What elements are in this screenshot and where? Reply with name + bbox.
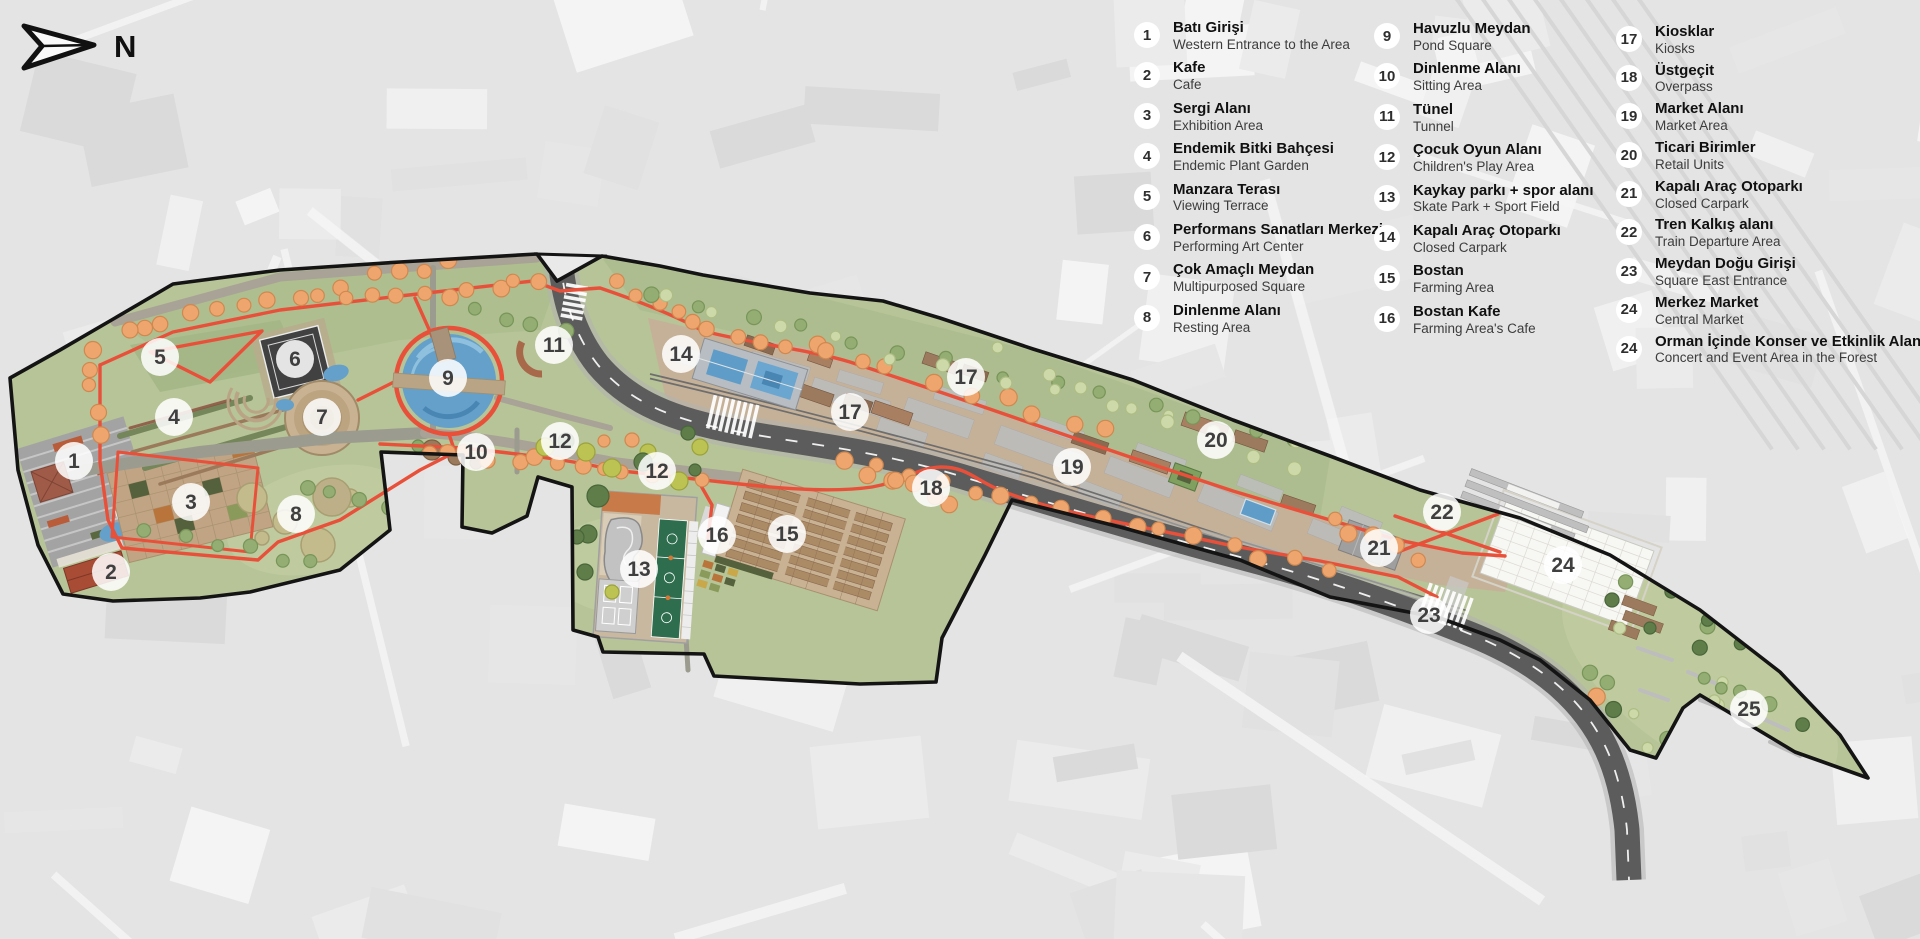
map-marker-17a: 17 bbox=[831, 393, 869, 431]
svg-text:19: 19 bbox=[1060, 456, 1083, 479]
svg-text:21: 21 bbox=[1367, 537, 1391, 560]
legend-number-18: 18 bbox=[1616, 65, 1642, 91]
legend-number-8: 8 bbox=[1134, 305, 1160, 331]
legend-title-tr: Batı Girişi bbox=[1173, 20, 1350, 37]
map-marker-5: 5 bbox=[141, 338, 179, 376]
svg-text:15: 15 bbox=[775, 523, 799, 546]
map-marker-17b: 17 bbox=[947, 358, 985, 396]
svg-text:14: 14 bbox=[669, 343, 693, 366]
legend-subtitle-en: Farming Area bbox=[1413, 280, 1494, 295]
legend-subtitle-en: Skate Park + Sport Field bbox=[1413, 199, 1594, 214]
legend-title-tr: Endemik Bitki Bahçesi bbox=[1173, 141, 1334, 158]
legend-subtitle-en: Exhibition Area bbox=[1173, 118, 1263, 133]
north-arrow-icon bbox=[16, 18, 104, 74]
svg-text:8: 8 bbox=[290, 503, 302, 526]
legend-item-25: 24Orman İçinde Konser ve Etkinlik AlanıC… bbox=[1616, 334, 1866, 373]
svg-text:16: 16 bbox=[705, 524, 728, 547]
legend-subtitle-en: Closed Carpark bbox=[1655, 196, 1803, 211]
legend-item-20: 20Ticari BirimlerRetail Units bbox=[1616, 140, 1866, 179]
legend-number-14: 14 bbox=[1374, 225, 1400, 251]
legend-item-10: 10Dinlenme AlanıSitting Area bbox=[1374, 61, 1624, 101]
svg-text:23: 23 bbox=[1417, 604, 1440, 627]
map-marker-24: 24 bbox=[1544, 546, 1582, 584]
svg-text:22: 22 bbox=[1430, 501, 1453, 524]
legend-item-14: 14Kapalı Araç OtoparkıClosed Carpark bbox=[1374, 223, 1624, 263]
svg-text:10: 10 bbox=[464, 441, 487, 464]
legend-number-24: 24 bbox=[1616, 297, 1642, 323]
legend-title-tr: Merkez Market bbox=[1655, 295, 1758, 312]
svg-text:13: 13 bbox=[627, 558, 650, 581]
svg-text:17: 17 bbox=[838, 401, 861, 424]
legend-number-15: 15 bbox=[1374, 265, 1400, 291]
svg-text:4: 4 bbox=[168, 406, 180, 429]
map-marker-9: 9 bbox=[429, 359, 467, 397]
legend-subtitle-en: Endemic Plant Garden bbox=[1173, 158, 1334, 173]
legend-title-tr: Çok Amaçlı Meydan bbox=[1173, 262, 1314, 279]
legend-number-5: 5 bbox=[1134, 184, 1160, 210]
legend-title-tr: Üstgeçit bbox=[1655, 63, 1714, 80]
legend-item-15: 15BostanFarming Area bbox=[1374, 263, 1624, 303]
legend-item-22: 22Tren Kalkış alanıTrain Departure Area bbox=[1616, 217, 1866, 256]
map-marker-11: 11 bbox=[535, 326, 573, 364]
svg-text:12: 12 bbox=[548, 430, 571, 453]
legend-number-21: 21 bbox=[1616, 181, 1642, 207]
legend-subtitle-en: Closed Carpark bbox=[1413, 240, 1561, 255]
legend-subtitle-en: Cafe bbox=[1173, 77, 1206, 92]
legend-subtitle-en: Concert and Event Area in the Forest bbox=[1655, 350, 1920, 365]
legend-item-5: 5Manzara TerasıViewing Terrace bbox=[1134, 182, 1384, 222]
svg-text:12: 12 bbox=[645, 460, 668, 483]
map-marker-1: 1 bbox=[55, 442, 93, 480]
legend-number-22: 22 bbox=[1616, 219, 1642, 245]
svg-text:6: 6 bbox=[289, 348, 301, 371]
legend-item-19: 19Market AlanıMarket Area bbox=[1616, 101, 1866, 140]
legend-item-11: 11TünelTunnel bbox=[1374, 102, 1624, 142]
legend-number-20: 20 bbox=[1616, 142, 1642, 168]
legend-item-17: 17KiosklarKiosks bbox=[1616, 24, 1866, 63]
legend-item-3: 3Sergi AlanıExhibition Area bbox=[1134, 101, 1384, 141]
legend-title-tr: Manzara Terası bbox=[1173, 182, 1280, 199]
map-marker-19: 19 bbox=[1053, 448, 1091, 486]
map-marker-16: 16 bbox=[698, 516, 736, 554]
legend-subtitle-en: Retail Units bbox=[1655, 157, 1756, 172]
legend-subtitle-en: Overpass bbox=[1655, 79, 1714, 94]
legend-subtitle-en: Sitting Area bbox=[1413, 78, 1521, 93]
map-marker-2: 2 bbox=[92, 553, 130, 591]
legend-title-tr: Havuzlu Meydan bbox=[1413, 21, 1531, 38]
svg-text:9: 9 bbox=[442, 367, 454, 390]
legend-number-23: 23 bbox=[1616, 258, 1642, 284]
legend-number-1: 1 bbox=[1134, 22, 1160, 48]
legend-number-25: 24 bbox=[1616, 336, 1642, 362]
map-marker-21: 21 bbox=[1360, 529, 1398, 567]
legend-title-tr: Tren Kalkış alanı bbox=[1655, 217, 1781, 234]
legend-item-4: 4Endemik Bitki BahçesiEndemic Plant Gard… bbox=[1134, 141, 1384, 181]
legend-item-1: 1Batı GirişiWestern Entrance to the Area bbox=[1134, 20, 1384, 60]
legend-subtitle-en: Train Departure Area bbox=[1655, 234, 1781, 249]
legend-number-7: 7 bbox=[1134, 264, 1160, 290]
legend-item-13: 13Kaykay parkı + spor alanıSkate Park + … bbox=[1374, 183, 1624, 223]
map-marker-6: 6 bbox=[276, 340, 314, 378]
legend-subtitle-en: Western Entrance to the Area bbox=[1173, 37, 1350, 52]
legend-subtitle-en: Children's Play Area bbox=[1413, 159, 1542, 174]
legend-column-1: 1Batı GirişiWestern Entrance to the Area… bbox=[1134, 20, 1384, 343]
legend-title-tr: Kiosklar bbox=[1655, 24, 1714, 41]
legend-item-21: 21Kapalı Araç OtoparkıClosed Carpark bbox=[1616, 179, 1866, 218]
map-marker-7: 7 bbox=[303, 398, 341, 436]
map-marker-15: 15 bbox=[768, 515, 806, 553]
legend-title-tr: Bostan Kafe bbox=[1413, 304, 1536, 321]
svg-text:17: 17 bbox=[954, 366, 977, 389]
legend-subtitle-en: Market Area bbox=[1655, 118, 1744, 133]
map-marker-14: 14 bbox=[662, 335, 700, 373]
svg-text:2: 2 bbox=[105, 561, 117, 584]
svg-text:5: 5 bbox=[154, 346, 166, 369]
map-marker-3: 3 bbox=[172, 483, 210, 521]
legend-item-9: 9Havuzlu MeydanPond Square bbox=[1374, 21, 1624, 61]
legend-number-12: 12 bbox=[1374, 144, 1400, 170]
legend-title-tr: Orman İçinde Konser ve Etkinlik Alanı bbox=[1655, 334, 1920, 351]
legend-title-tr: Market Alanı bbox=[1655, 101, 1744, 118]
legend-item-23: 23Meydan Doğu GirişiSquare East Entrance bbox=[1616, 256, 1866, 295]
map-marker-23: 23 bbox=[1410, 596, 1448, 634]
svg-text:24: 24 bbox=[1551, 554, 1575, 577]
legend-column-3: 17KiosklarKiosks 18ÜstgeçitOverpass 19Ma… bbox=[1616, 24, 1866, 372]
legend-subtitle-en: Performing Art Center bbox=[1173, 239, 1383, 254]
legend-number-16: 16 bbox=[1374, 306, 1400, 332]
map-marker-18: 18 bbox=[912, 469, 950, 507]
map-marker-22: 22 bbox=[1423, 493, 1461, 531]
svg-text:3: 3 bbox=[185, 491, 197, 514]
legend-title-tr: Bostan bbox=[1413, 263, 1494, 280]
legend-subtitle-en: Central Market bbox=[1655, 312, 1758, 327]
legend-number-10: 10 bbox=[1374, 63, 1400, 89]
svg-text:20: 20 bbox=[1204, 429, 1227, 452]
legend-subtitle-en: Viewing Terrace bbox=[1173, 198, 1280, 213]
legend-number-17: 17 bbox=[1616, 26, 1642, 52]
legend-title-tr: Dinlenme Alanı bbox=[1173, 303, 1281, 320]
legend-title-tr: Çocuk Oyun Alanı bbox=[1413, 142, 1542, 159]
legend-title-tr: Sergi Alanı bbox=[1173, 101, 1263, 118]
legend-title-tr: Meydan Doğu Girişi bbox=[1655, 256, 1796, 273]
legend-item-6: 6Performans Sanatları MerkeziPerforming … bbox=[1134, 222, 1384, 262]
legend-item-16: 16Bostan KafeFarming Area's Cafe bbox=[1374, 304, 1624, 344]
legend-number-3: 3 bbox=[1134, 103, 1160, 129]
legend-subtitle-en: Pond Square bbox=[1413, 38, 1531, 53]
legend-title-tr: Kapalı Araç Otoparkı bbox=[1655, 179, 1803, 196]
legend-number-2: 2 bbox=[1134, 62, 1160, 88]
legend-column-2: 9Havuzlu MeydanPond Square 10Dinlenme Al… bbox=[1374, 21, 1624, 344]
map-marker-25: 25 bbox=[1730, 690, 1768, 728]
legend-number-6: 6 bbox=[1134, 224, 1160, 250]
north-arrow: N bbox=[16, 18, 136, 74]
legend-item-8: 8Dinlenme AlanıResting Area bbox=[1134, 303, 1384, 343]
legend-item-24: 24Merkez MarketCentral Market bbox=[1616, 295, 1866, 334]
legend-title-tr: Dinlenme Alanı bbox=[1413, 61, 1521, 78]
legend-title-tr: Kafe bbox=[1173, 60, 1206, 77]
legend-number-9: 9 bbox=[1374, 23, 1400, 49]
legend-title-tr: Ticari Birimler bbox=[1655, 140, 1756, 157]
svg-text:11: 11 bbox=[543, 334, 566, 357]
legend-title-tr: Performans Sanatları Merkezi bbox=[1173, 222, 1383, 239]
legend-number-4: 4 bbox=[1134, 143, 1160, 169]
legend-subtitle-en: Square East Entrance bbox=[1655, 273, 1796, 288]
map-marker-8: 8 bbox=[277, 495, 315, 533]
map-marker-12a: 12 bbox=[541, 422, 579, 460]
svg-text:7: 7 bbox=[316, 406, 328, 429]
legend-number-19: 19 bbox=[1616, 103, 1642, 129]
legend-subtitle-en: Farming Area's Cafe bbox=[1413, 321, 1536, 336]
legend-title-tr: Kapalı Araç Otoparkı bbox=[1413, 223, 1561, 240]
svg-text:18: 18 bbox=[919, 477, 943, 500]
legend-subtitle-en: Kiosks bbox=[1655, 41, 1714, 56]
north-label: N bbox=[114, 31, 136, 62]
legend-item-12: 12Çocuk Oyun AlanıChildren's Play Area bbox=[1374, 142, 1624, 182]
svg-text:25: 25 bbox=[1737, 698, 1761, 721]
site-plan-page: 1 2 3 4 5 6 7 8 9 10 11 12 12 13 14 15 1… bbox=[0, 0, 1920, 939]
legend-item-18: 18ÜstgeçitOverpass bbox=[1616, 63, 1866, 102]
legend-subtitle-en: Multipurposed Square bbox=[1173, 279, 1314, 294]
map-marker-10: 10 bbox=[457, 433, 495, 471]
legend-item-2: 2KafeCafe bbox=[1134, 60, 1384, 100]
legend-subtitle-en: Tunnel bbox=[1413, 119, 1454, 134]
map-marker-4: 4 bbox=[155, 398, 193, 436]
legend-subtitle-en: Resting Area bbox=[1173, 320, 1281, 335]
map-marker-13: 13 bbox=[620, 550, 658, 588]
legend-title-tr: Kaykay parkı + spor alanı bbox=[1413, 183, 1594, 200]
legend-number-13: 13 bbox=[1374, 185, 1400, 211]
map-marker-12b: 12 bbox=[638, 452, 676, 490]
svg-text:1: 1 bbox=[68, 450, 80, 473]
small-pond-2 bbox=[276, 399, 294, 411]
legend-title-tr: Tünel bbox=[1413, 102, 1454, 119]
legend-number-11: 11 bbox=[1374, 104, 1400, 130]
map-marker-20: 20 bbox=[1197, 421, 1235, 459]
legend-item-7: 7Çok Amaçlı MeydanMultipurposed Square bbox=[1134, 262, 1384, 302]
